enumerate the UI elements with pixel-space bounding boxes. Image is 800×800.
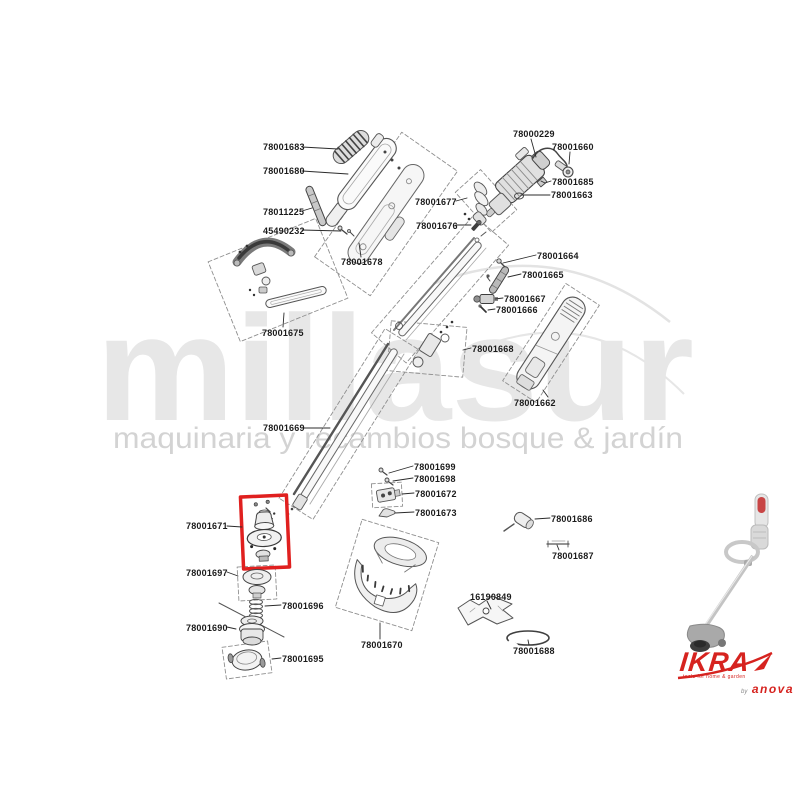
part-label-45490232[interactable]: 45490232: [263, 226, 305, 236]
part-label-78001683[interactable]: 78001683: [263, 142, 305, 152]
part-drawing-bracket-78001673: [379, 509, 395, 517]
part-label-78001677[interactable]: 78001677: [415, 197, 457, 207]
part-drawing-spring-78001696: [250, 599, 263, 618]
part-drawing-head-78001671: [240, 495, 289, 569]
part-label-78001686[interactable]: 78001686: [551, 514, 593, 524]
part-label-78001687[interactable]: 78001687: [552, 551, 594, 561]
part-drawing-connector-78001660: [554, 160, 573, 177]
part-label-78001673[interactable]: 78001673: [415, 508, 457, 518]
part-label-78001668[interactable]: 78001668: [472, 344, 514, 354]
part-label-78011225[interactable]: 78011225: [263, 207, 304, 217]
part-label-78001672[interactable]: 78001672: [415, 489, 457, 499]
part-drawing-cover-78001695: [227, 648, 265, 673]
part-drawing-ring-78001688: [507, 631, 549, 645]
part-label-78001675[interactable]: 78001675: [262, 328, 304, 338]
part-drawing-coupler-78001668: [413, 321, 453, 367]
byline-prefix: by: [741, 689, 747, 695]
part-label-78001680[interactable]: 78001680: [263, 166, 305, 176]
part-label-78001660[interactable]: 78001660: [552, 142, 594, 152]
part-label-16190849[interactable]: 16190849: [470, 592, 512, 602]
part-label-78000229[interactable]: 78000229: [513, 129, 555, 139]
part-drawing-guard-78001670: [345, 528, 430, 618]
part-drawing-tool-78001687: [547, 541, 569, 547]
part-label-78001663[interactable]: 78001663: [551, 190, 593, 200]
dashed-box-78001670: [335, 519, 438, 630]
dashed-box-78001675: [208, 218, 348, 341]
part-label-78001697[interactable]: 78001697: [186, 568, 228, 578]
part-label-78001695[interactable]: 78001695: [282, 654, 324, 664]
part-drawing-block-78001672: [376, 487, 401, 503]
part-drawing-lever-78011225: [305, 185, 327, 227]
part-label-78001664[interactable]: 78001664: [537, 251, 579, 261]
trimmer-red-grip: [758, 497, 766, 513]
part-label-78001699[interactable]: 78001699: [414, 462, 456, 472]
parts-diagram-page: millasur maquinaria y recambios bosque &…: [0, 0, 800, 800]
anova-brand-text: anova: [752, 682, 794, 696]
part-label-78001666[interactable]: 78001666: [496, 305, 538, 315]
part-drawing-gearhead-78001697: [243, 570, 271, 599]
part-label-78001671[interactable]: 78001671: [186, 521, 228, 531]
part-label-78001670[interactable]: 78001670: [361, 640, 403, 650]
trimmer-shaft: [706, 556, 753, 626]
part-label-78001696[interactable]: 78001696: [282, 601, 324, 611]
ikra-logo: IKRA tools for home & garden by anova: [676, 649, 798, 695]
part-drawing-screw-78001666: [478, 304, 486, 312]
part-label-78001662[interactable]: 78001662: [514, 398, 556, 408]
part-drawing-pin-78001686: [504, 510, 535, 531]
part-label-78001678[interactable]: 78001678: [341, 257, 383, 267]
product-photo-trimmer: [660, 480, 800, 655]
part-drawing-lever-78001665: [488, 265, 510, 294]
barrier-bar: [265, 286, 327, 309]
part-drawing-front-handle-78001675: [234, 242, 327, 309]
part-label-78001676[interactable]: 78001676: [416, 221, 458, 231]
part-label-78001667[interactable]: 78001667: [504, 294, 546, 304]
part-label-78001688[interactable]: 78001688: [513, 646, 555, 656]
part-label-78001698[interactable]: 78001698: [414, 474, 456, 484]
anova-byline: by anova: [676, 680, 798, 698]
ikra-logo-text: IKRA: [679, 649, 800, 675]
part-label-78001669[interactable]: 78001669: [263, 423, 305, 433]
part-label-78001665[interactable]: 78001665: [522, 270, 564, 280]
part-label-78001685[interactable]: 78001685: [552, 177, 594, 187]
part-label-78001690[interactable]: 78001690: [186, 623, 228, 633]
